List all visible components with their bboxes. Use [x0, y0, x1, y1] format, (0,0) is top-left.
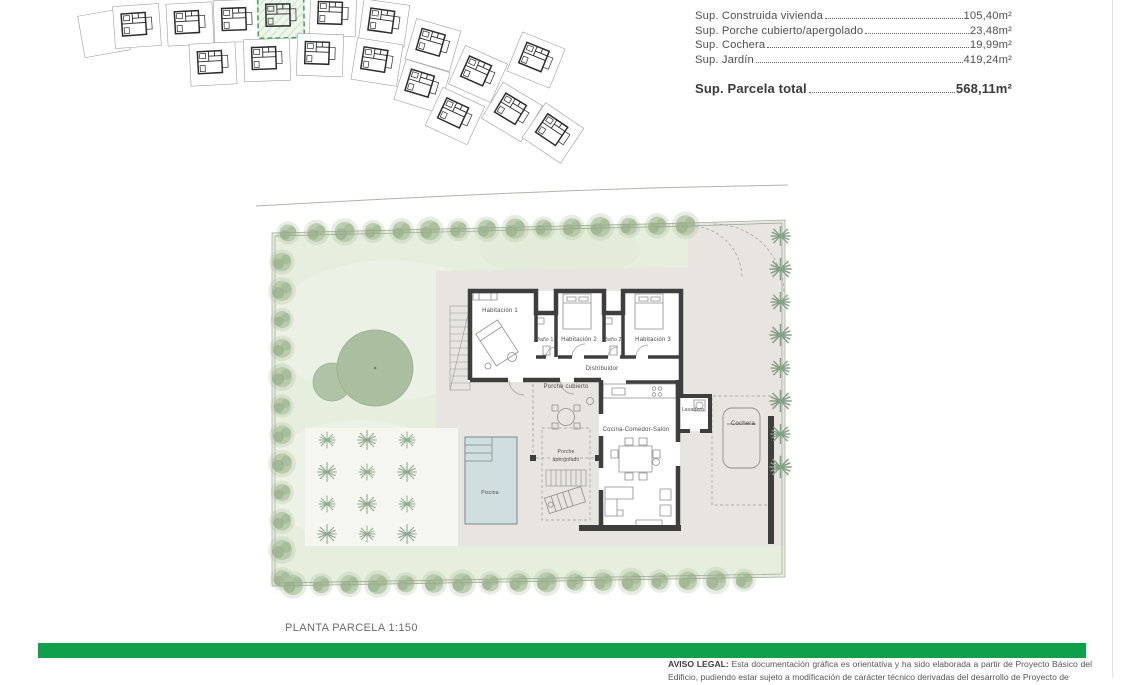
road-line: [256, 185, 788, 206]
room-label: apergolado: [552, 457, 579, 463]
site-map: [78, 0, 584, 163]
hedge-palm: [771, 358, 791, 378]
room-label: Distribuidor: [586, 366, 619, 372]
legal-label: AVISO LEGAL:: [668, 659, 729, 669]
site-map-plot-11: [243, 38, 290, 82]
tree-top: [587, 213, 615, 241]
tree-left: [270, 394, 293, 417]
tree-top: [532, 216, 555, 239]
plan-canvas: Habitación 1Baño 1Habitación 2Baño 2Habi…: [0, 0, 1125, 678]
grid-plant: [359, 464, 376, 481]
grid-plant: [317, 462, 337, 482]
site-map-plot-1: [113, 3, 162, 48]
grid-plant: [357, 494, 377, 514]
tree-left: [269, 508, 294, 533]
hedge-palm: [769, 324, 791, 346]
tree-bottom: [702, 567, 730, 595]
area-table: Sup. Construida vivienda105,40m²Sup. Por…: [695, 10, 1012, 98]
area-row: Sup. Porche cubierto/apergolado23,48m²: [695, 25, 1012, 40]
parcel-plan: Habitación 1Baño 1Habitación 2Baño 2Habi…: [256, 185, 792, 599]
tree-left: [269, 336, 294, 361]
area-total-label: Sup. Parcela total: [695, 81, 807, 96]
tree-top: [474, 216, 499, 241]
area-total-value: 568,11m²: [956, 81, 1012, 96]
tree-left: [268, 450, 296, 478]
room-label: Porche: [557, 449, 574, 455]
site-map-plot-13: [351, 38, 403, 87]
room-label: Lavadero: [682, 407, 704, 413]
tree-top: [447, 218, 470, 241]
dot-leader: [756, 62, 963, 63]
tree-top: [389, 218, 414, 243]
dot-leader: [825, 18, 963, 19]
tree-bottom: [590, 569, 615, 594]
tree-top: [559, 215, 584, 240]
area-row: Sup. Jardín419,24m²: [695, 54, 1012, 69]
site-map-plot-12: [296, 33, 343, 77]
tree-left: [268, 363, 296, 391]
grid-plant: [397, 524, 417, 544]
tree-bottom: [648, 569, 671, 592]
tree-bottom: [733, 569, 756, 592]
room-label: Porche cubierto: [543, 384, 588, 390]
tree-left: [269, 422, 294, 447]
tree-top: [617, 215, 640, 238]
page-edge-line: [1112, 0, 1113, 678]
tree-top: [331, 218, 359, 246]
tree-left: [270, 308, 293, 331]
tree-bottom: [448, 569, 476, 597]
dot-leader: [865, 33, 969, 34]
tree-top: [644, 213, 669, 238]
tree-bottom: [506, 570, 531, 595]
tree-left: [270, 481, 293, 504]
site-map-plot-highlighted: [258, 0, 305, 38]
area-table-rows: Sup. Construida vivienda105,40m²Sup. Por…: [695, 10, 1012, 68]
dot-leader: [809, 92, 955, 93]
grid-plant: [359, 526, 376, 543]
hedge-palm: [769, 258, 791, 280]
grid-plant: [399, 496, 416, 513]
room-label: Piscina: [481, 490, 499, 496]
tree-bottom: [675, 568, 700, 593]
site-map-plot-16: [507, 32, 565, 88]
room-label: Habitación 2: [561, 337, 597, 343]
room-label: Cocina-Comedor-Salón: [603, 427, 670, 433]
tree-top: [416, 216, 444, 244]
grid-plant: [317, 524, 337, 544]
site-map-plot-2: [166, 2, 214, 46]
tree-bottom: [533, 569, 561, 597]
site-map-plot-3: [213, 0, 260, 43]
footer-bar: [38, 643, 1086, 658]
area-row: Sup. Construida vivienda105,40m²: [695, 10, 1012, 25]
tree-top: [672, 212, 700, 240]
plan-title: PLANTA PARCELA 1:150: [285, 622, 418, 634]
hedge-palm: [769, 456, 791, 478]
area-row: Sup. Cochera19,99m²: [695, 39, 1012, 54]
site-map-plot-5: [309, 0, 356, 37]
site-map-plot-10: [189, 42, 237, 86]
hedge-palm: [769, 390, 791, 412]
grid-plant: [357, 430, 377, 450]
room-label: Baño 1: [536, 337, 553, 343]
room-label: Baño 2: [604, 337, 621, 343]
tree-left: [269, 249, 294, 274]
hedge-palm: [771, 424, 791, 444]
legal-text: Esta documentación gráfica es orientativ…: [668, 659, 1092, 682]
tree-top: [362, 220, 385, 243]
tree-bottom: [618, 568, 646, 596]
grid-plant: [319, 496, 336, 513]
hedge-palm: [771, 226, 791, 246]
tree-bottom: [479, 571, 502, 594]
legal-disclaimer: AVISO LEGAL: Esta documentación gráfica …: [668, 658, 1092, 685]
plant-grid-area: [305, 428, 458, 546]
room-label: Habitación 1: [482, 308, 518, 314]
tree-left: [268, 536, 296, 564]
grid-plant: [399, 432, 416, 449]
room-label: Habitación 3: [635, 337, 671, 343]
dot-leader: [767, 47, 969, 48]
hedge-palm: [771, 292, 791, 312]
grid-plant: [319, 432, 336, 449]
tree-left: [268, 277, 296, 305]
area-total-row: Sup. Parcela total 568,11m²: [695, 81, 1012, 98]
room-label: Cochera: [731, 421, 756, 427]
grid-plant: [397, 462, 417, 482]
tree-bottom: [563, 570, 586, 593]
pool: [465, 437, 517, 524]
tree-bottom: [279, 571, 307, 599]
tree-top: [501, 215, 529, 243]
